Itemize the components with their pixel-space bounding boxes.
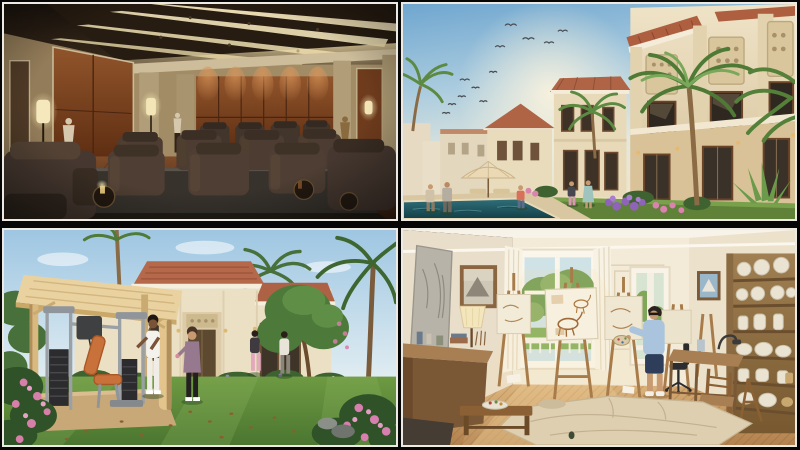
panel-garden-gym xyxy=(2,228,398,447)
framed-painting xyxy=(460,265,497,308)
panel-villas-exterior xyxy=(401,2,797,221)
seascape-frame xyxy=(697,271,721,300)
green-bottle xyxy=(569,431,575,439)
garden-gym-image xyxy=(4,230,396,445)
art-studio-image xyxy=(403,230,795,445)
home-theater-image xyxy=(4,4,396,219)
villas-exterior-image xyxy=(403,4,795,219)
panel-art-studio xyxy=(401,228,797,447)
panel-home-theater xyxy=(2,2,398,221)
center-villa xyxy=(550,76,630,197)
collage-grid xyxy=(0,0,800,450)
main-villa xyxy=(626,4,795,213)
